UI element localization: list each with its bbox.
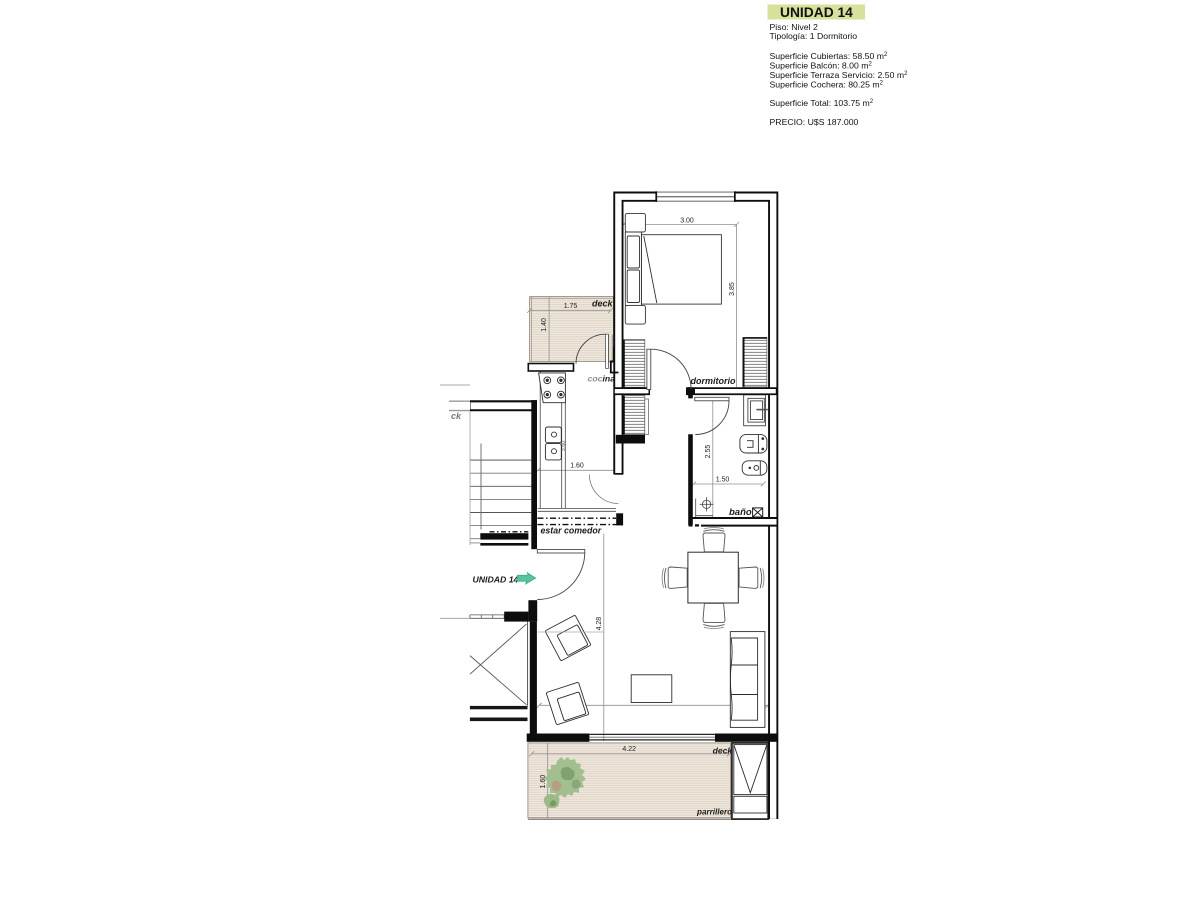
svg-text:Tipología: 1 Dormitorio: Tipología: 1 Dormitorio xyxy=(770,31,858,41)
svg-text:PRECIO: U$S 187.000: PRECIO: U$S 187.000 xyxy=(770,117,859,127)
svg-text:estar comedor: estar comedor xyxy=(541,526,602,536)
svg-text:UNIDAD 14: UNIDAD 14 xyxy=(473,574,519,584)
svg-text:4.28: 4.28 xyxy=(596,617,603,631)
svg-text:ck: ck xyxy=(451,411,462,421)
svg-text:4.22: 4.22 xyxy=(622,746,636,753)
svg-text:3.00: 3.00 xyxy=(680,218,694,225)
svg-text:1.40: 1.40 xyxy=(541,318,548,332)
svg-text:parrillero: parrillero xyxy=(696,807,732,816)
svg-text:dormitorio: dormitorio xyxy=(691,376,736,386)
svg-text:Superficie Terraza Servicio: 2: Superficie Terraza Servicio: 2.50 m2 xyxy=(770,70,909,80)
svg-text:cocina: cocina xyxy=(588,374,616,384)
svg-text:Superficie Cochera: 80.25 m2: Superficie Cochera: 80.25 m2 xyxy=(770,79,884,89)
svg-text:1.75: 1.75 xyxy=(564,303,578,310)
svg-text:3.85: 3.85 xyxy=(729,282,736,296)
svg-text:Superficie Cubiertas: 58.50 m2: Superficie Cubiertas: 58.50 m2 xyxy=(770,51,888,61)
svg-text:baño: baño xyxy=(729,507,752,518)
svg-text:deck: deck xyxy=(713,745,734,755)
svg-text:Superficie Total: 103.75 m2: Superficie Total: 103.75 m2 xyxy=(770,98,874,108)
svg-text:deck: deck xyxy=(592,299,614,309)
svg-text:1.50: 1.50 xyxy=(716,476,730,483)
svg-text:1.60: 1.60 xyxy=(570,463,584,470)
svg-text:2.55: 2.55 xyxy=(705,445,712,459)
svg-text:UNIDAD 14: UNIDAD 14 xyxy=(780,5,853,20)
svg-text:Superficie Balcón: 8.00 m2: Superficie Balcón: 8.00 m2 xyxy=(770,60,873,70)
